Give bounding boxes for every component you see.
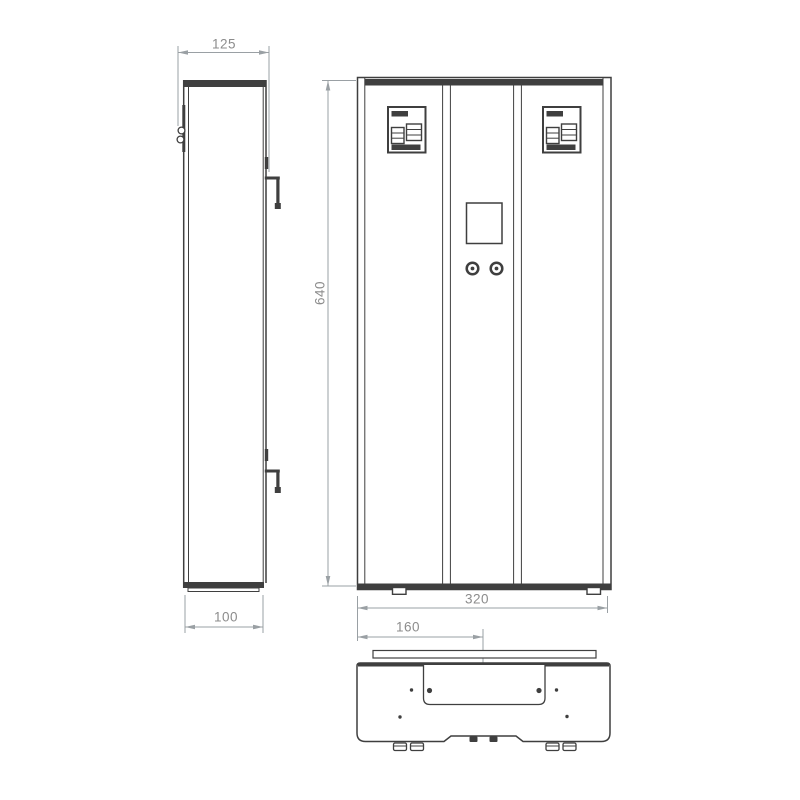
cable-glands [394,743,577,751]
control-knob-left [467,263,479,275]
arrowhead-left-icon [178,50,188,55]
arrowhead-left-icon [358,606,368,611]
dimension-label-half-width: 160 [396,620,420,635]
arrowhead-right-icon [259,50,269,55]
cable-gland-icon [411,743,424,751]
arrowhead-right-icon [253,625,263,630]
dimension-125-lines [178,46,269,172]
cable-gland-icon [563,743,576,751]
back-mounting-plate [373,651,596,659]
front-view [322,78,611,665]
front-outer-frame [358,78,612,590]
arrowhead-left-icon [185,625,195,630]
front-foot-left [393,588,407,595]
hook-eyelet-icon [178,127,185,134]
dimension-label-width: 320 [465,592,489,607]
front-foot-right [587,588,601,595]
bottom-view [357,651,610,751]
technical-drawing-canvas: 125 640 100 320 160 [0,0,800,800]
arrowhead-left-icon [358,635,368,640]
screw-icon [565,715,568,718]
dimension-label-depth-bottom: 100 [214,610,238,625]
screw-icon [410,688,413,691]
dimension-label-depth-top: 125 [212,37,236,52]
breaker-module-left [388,107,426,153]
terminal-cover [424,665,546,705]
side-top-cap [183,80,267,87]
side-bottom-lip [188,588,259,592]
screw-icon [398,715,401,718]
arrowhead-up-icon [326,81,331,91]
dimension-160-lines [358,629,484,664]
control-knob-right [491,263,503,275]
display-screen [467,203,503,244]
hook-eyelet-icon [177,136,184,143]
front-body [358,78,612,595]
arrowhead-right-icon [598,606,608,611]
dimension-640-lines [322,81,356,587]
wall-bracket-upper [265,157,281,209]
cable-gland-icon [394,743,407,751]
screw-icon [427,688,432,693]
side-view [177,46,281,633]
side-bottom-cap [183,582,264,588]
wall-bracket-lower [265,449,281,493]
drawing-linework [0,0,800,800]
dimension-label-height: 640 [313,281,328,305]
screw-icon [536,688,541,693]
breaker-module-right [543,107,581,153]
arrowhead-down-icon [326,576,331,586]
screw-icon [555,688,558,691]
side-body [182,80,266,592]
cable-gland-icon [546,743,559,751]
front-top-rail [365,79,603,86]
arrowhead-right-icon [473,635,483,640]
drain-connectors [470,737,498,743]
